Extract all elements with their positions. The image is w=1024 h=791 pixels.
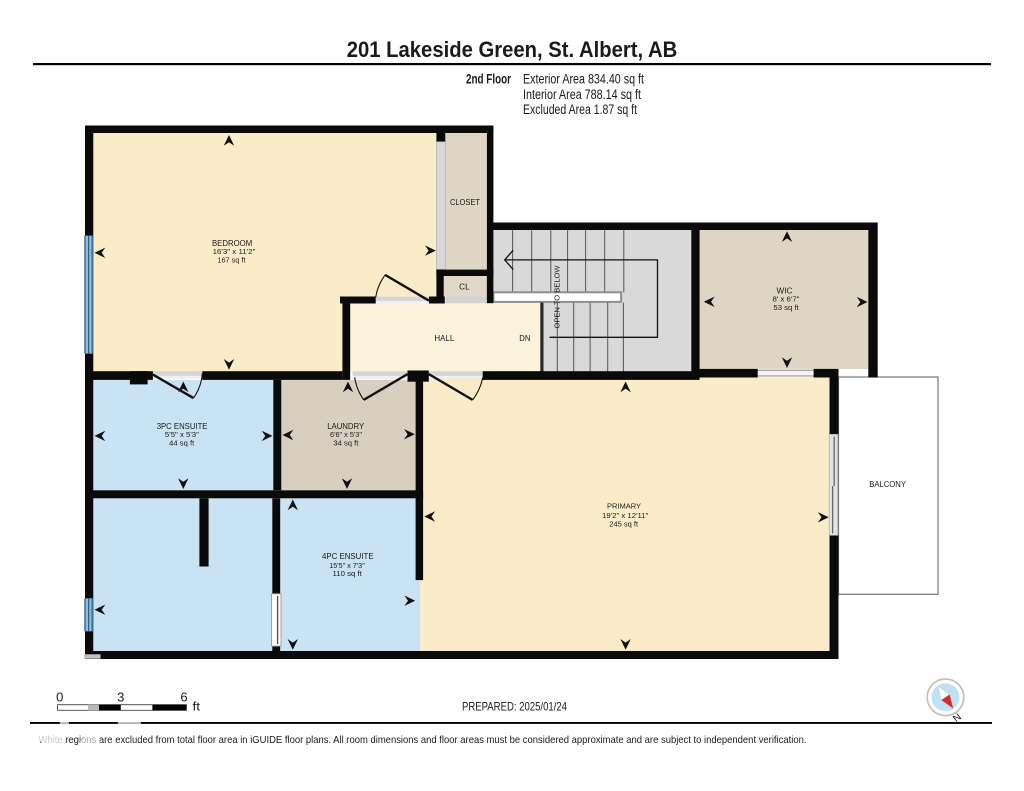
svg-text:0: 0 bbox=[56, 690, 63, 705]
svg-text:110 sq ft: 110 sq ft bbox=[333, 569, 362, 578]
svg-text:PREPARED: 2025/01/24: PREPARED: 2025/01/24 bbox=[462, 699, 567, 713]
svg-text:53 sq ft: 53 sq ft bbox=[773, 303, 798, 312]
svg-text:BALCONY: BALCONY bbox=[869, 480, 907, 489]
svg-text:Exterior Area 834.40 sq ft: Exterior Area 834.40 sq ft bbox=[523, 72, 644, 87]
svg-text:167 sq ft: 167 sq ft bbox=[217, 255, 245, 264]
svg-text:HALL: HALL bbox=[434, 334, 454, 343]
svg-text:ft: ft bbox=[193, 701, 202, 713]
svg-text:201 Lakeside Green, St. Albert: 201 Lakeside Green, St. Albert, AB bbox=[347, 37, 678, 62]
svg-text:34 sq ft: 34 sq ft bbox=[333, 439, 358, 448]
svg-text:White regions are excluded fro: White regions are excluded from total fl… bbox=[39, 734, 807, 746]
svg-text:4PC ENSUITE: 4PC ENSUITE bbox=[322, 552, 374, 561]
svg-text:44 sq ft: 44 sq ft bbox=[169, 439, 194, 448]
svg-text:OPEN TO BELOW: OPEN TO BELOW bbox=[553, 265, 562, 329]
svg-text:PRIMARY: PRIMARY bbox=[607, 502, 641, 511]
svg-text:CLOSET: CLOSET bbox=[450, 198, 480, 207]
svg-text:6: 6 bbox=[180, 690, 187, 705]
svg-text:245 sq ft: 245 sq ft bbox=[609, 519, 638, 528]
svg-text:DN: DN bbox=[519, 334, 530, 343]
svg-text:CL: CL bbox=[459, 283, 470, 292]
svg-text:2nd Floor: 2nd Floor bbox=[466, 72, 512, 87]
svg-text:Interior Area 788.14 sq ft: Interior Area 788.14 sq ft bbox=[523, 87, 641, 102]
svg-text:3: 3 bbox=[117, 690, 124, 705]
svg-text:Excluded Area 1.87 sq ft: Excluded Area 1.87 sq ft bbox=[523, 102, 637, 117]
